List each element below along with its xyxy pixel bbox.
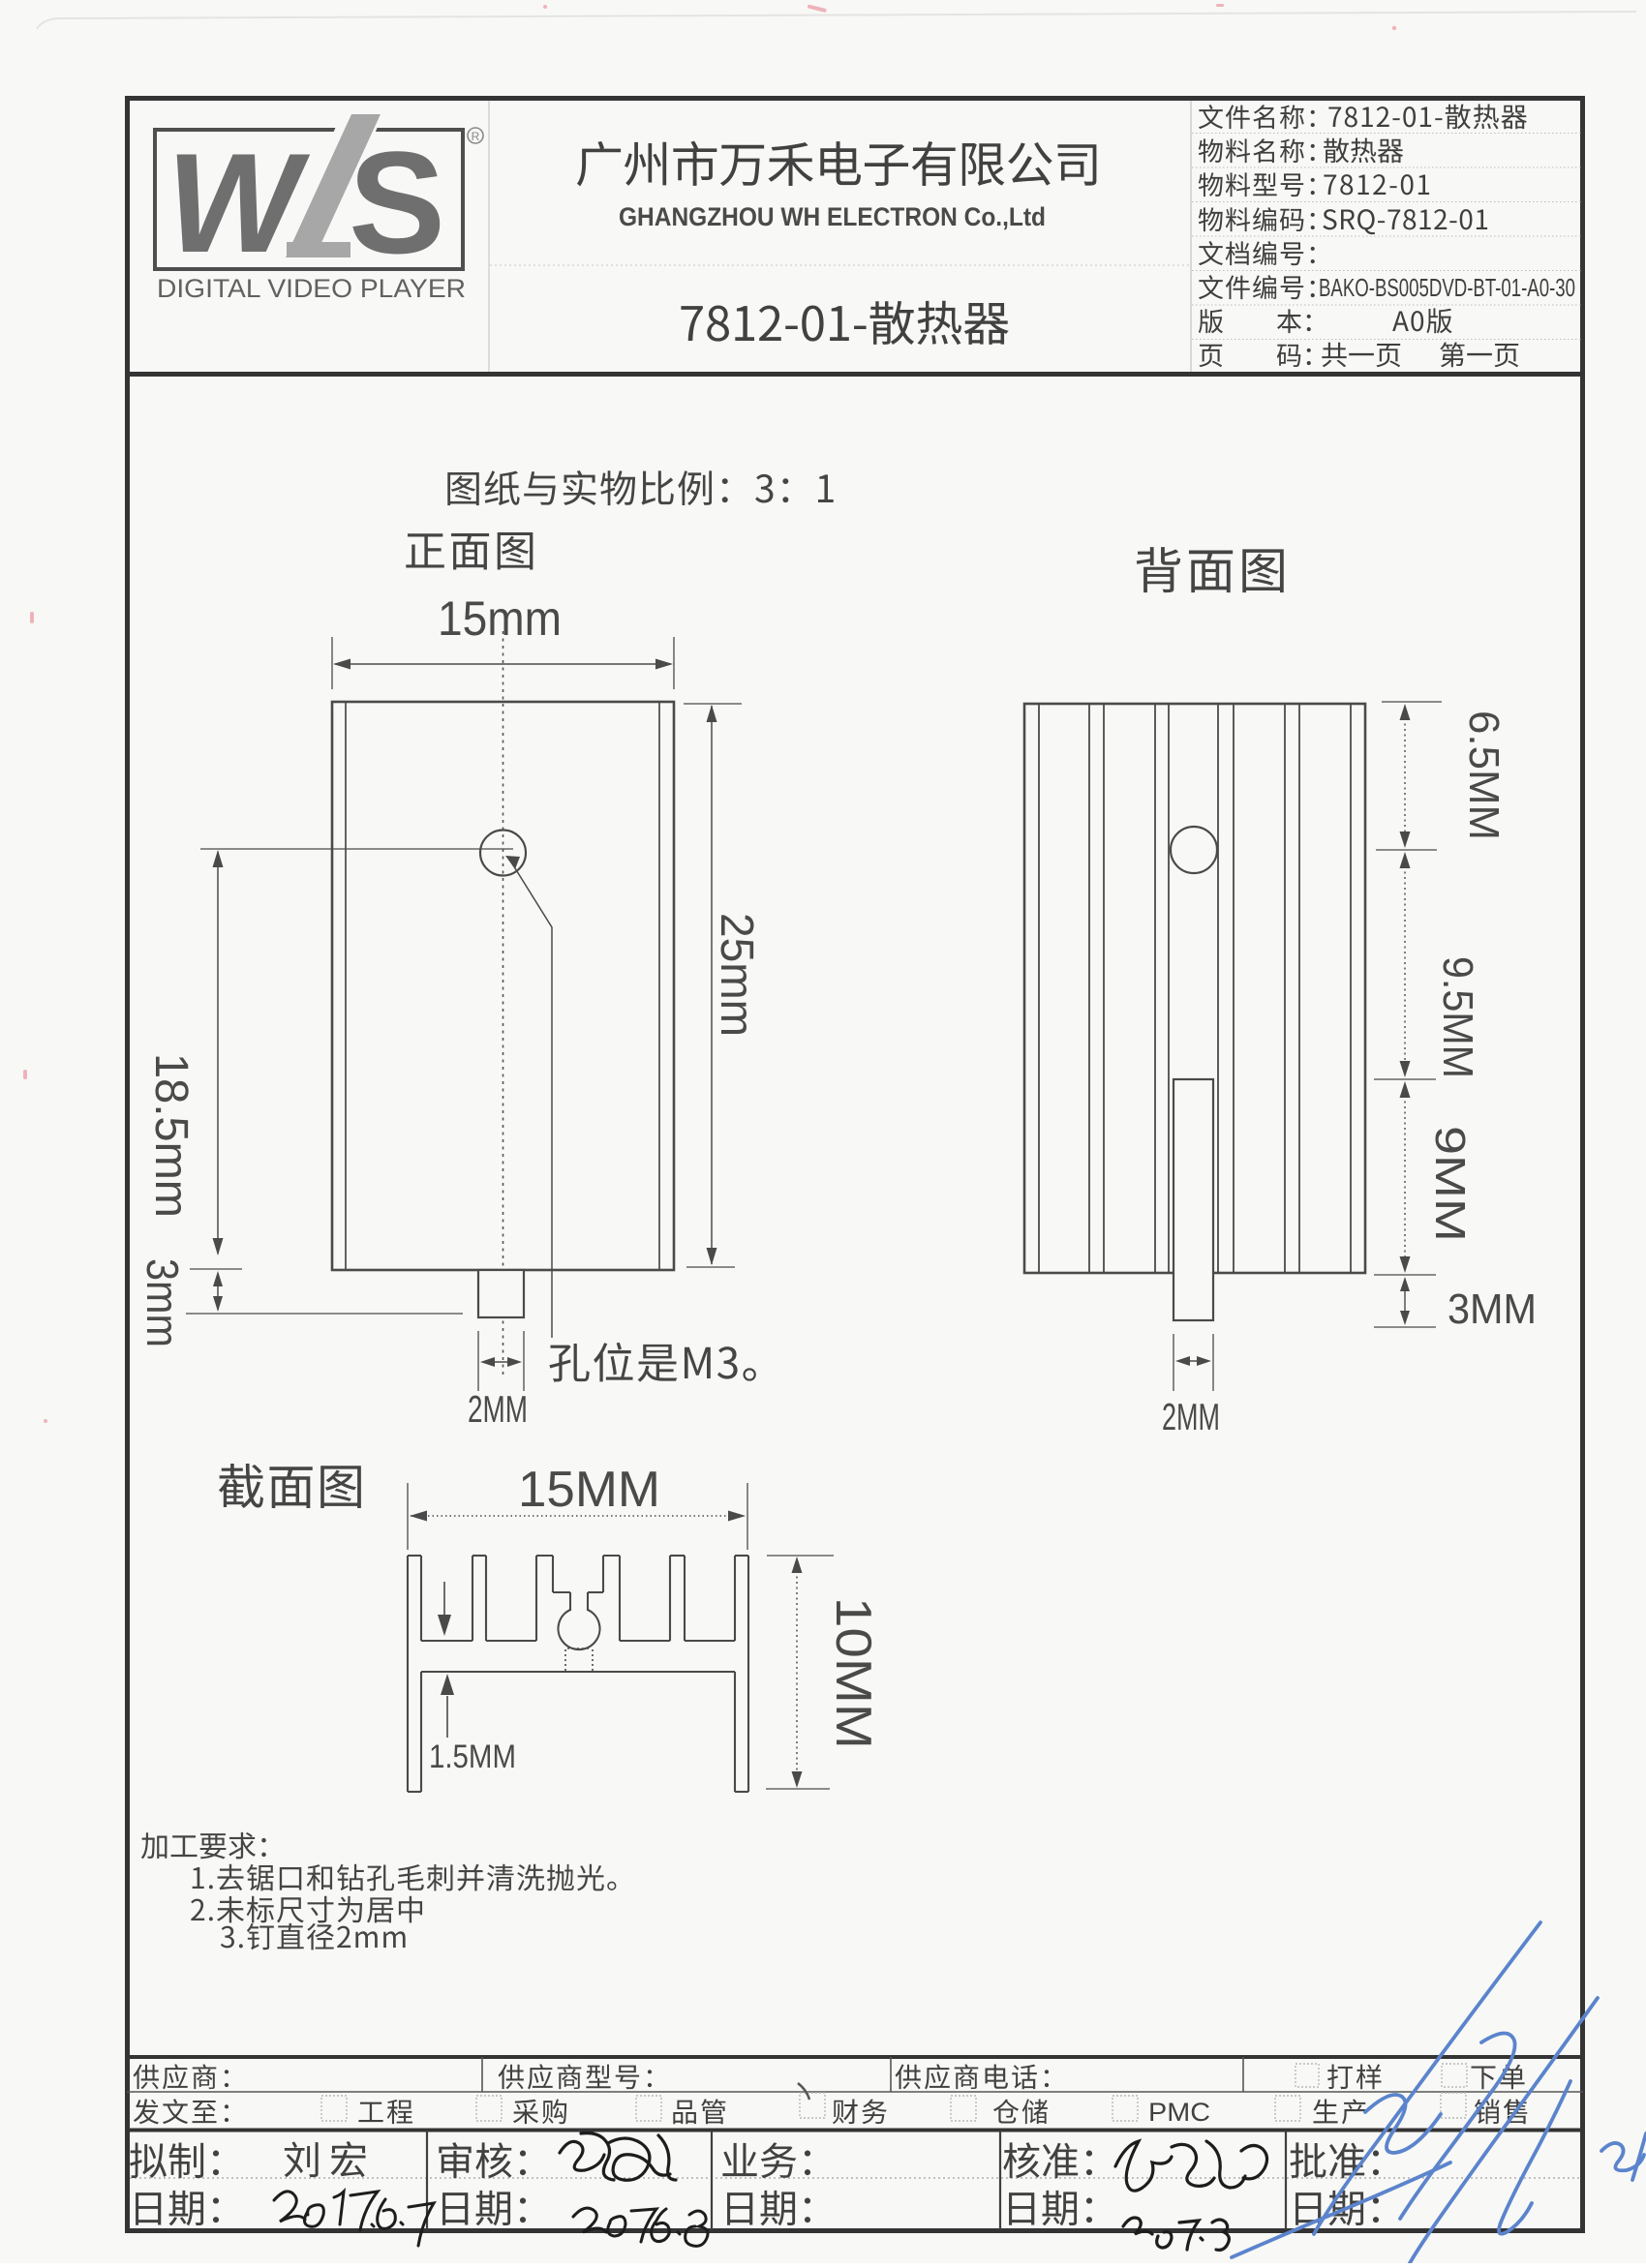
svg-text:2MM: 2MM (1162, 1397, 1220, 1438)
svg-text:9.5MM: 9.5MM (1434, 956, 1481, 1078)
svg-text:25mm: 25mm (711, 913, 762, 1037)
svg-text:2MM: 2MM (468, 1389, 528, 1431)
svg-text:9MM: 9MM (1426, 1126, 1474, 1242)
svg-text:10MM: 10MM (825, 1597, 881, 1749)
svg-text:6.5MM: 6.5MM (1460, 711, 1508, 840)
svg-text:BAKO-BS005DVD-BT-01-A0-30: BAKO-BS005DVD-BT-01-A0-30 (1319, 273, 1575, 302)
svg-text:3MM: 3MM (1448, 1285, 1537, 1333)
svg-text:GHANGZHOU WH ELECTRON Co.,Ltd: GHANGZHOU WH ELECTRON Co.,Ltd (619, 202, 1046, 231)
svg-text:18.5mm: 18.5mm (145, 1053, 197, 1218)
svg-text:1.5MM: 1.5MM (429, 1739, 516, 1775)
svg-text:15mm: 15mm (438, 591, 562, 646)
svg-text:DIGITAL VIDEO PLAYER: DIGITAL VIDEO PLAYER (157, 274, 466, 303)
svg-text:W: W (167, 124, 311, 282)
svg-text:3mm: 3mm (137, 1258, 188, 1347)
svg-text:S: S (349, 121, 445, 284)
svg-text:PMC: PMC (1148, 2098, 1210, 2127)
svg-text:15MM: 15MM (518, 1462, 660, 1518)
svg-text:R: R (472, 130, 480, 143)
